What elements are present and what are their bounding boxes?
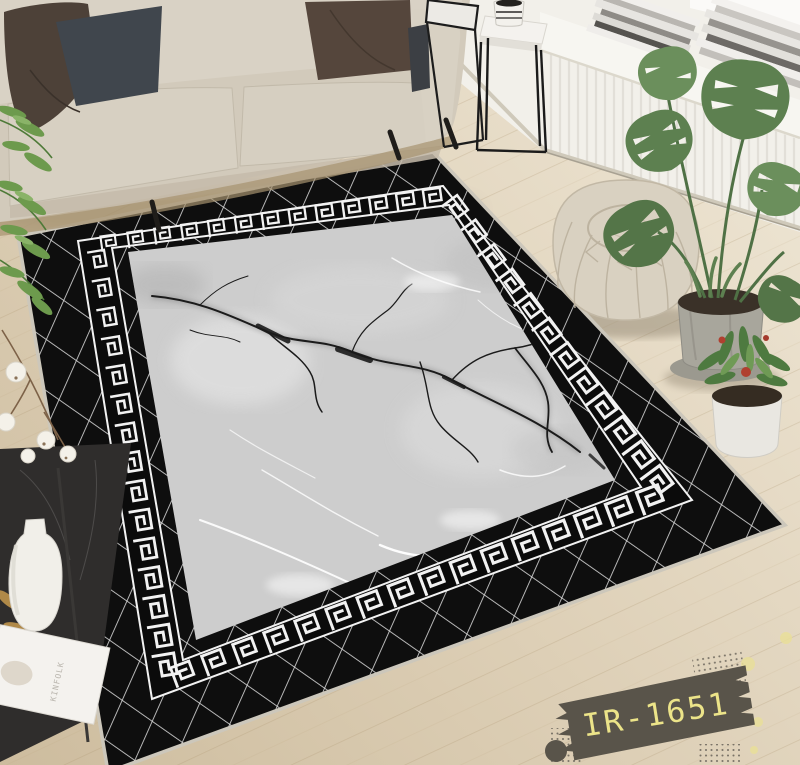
scene: KINFOLK IR-1651 [0,0,800,765]
red-center [741,367,751,377]
living-room-rug-photo: KINFOLK IR-1651 [0,0,800,765]
striped-vase [494,0,524,26]
pillow-brown-right [305,0,413,80]
pot-soil [678,289,764,315]
dark-dot [545,740,567,762]
white-pot-soil [712,385,782,407]
halftone-dots-bottom [698,744,740,764]
